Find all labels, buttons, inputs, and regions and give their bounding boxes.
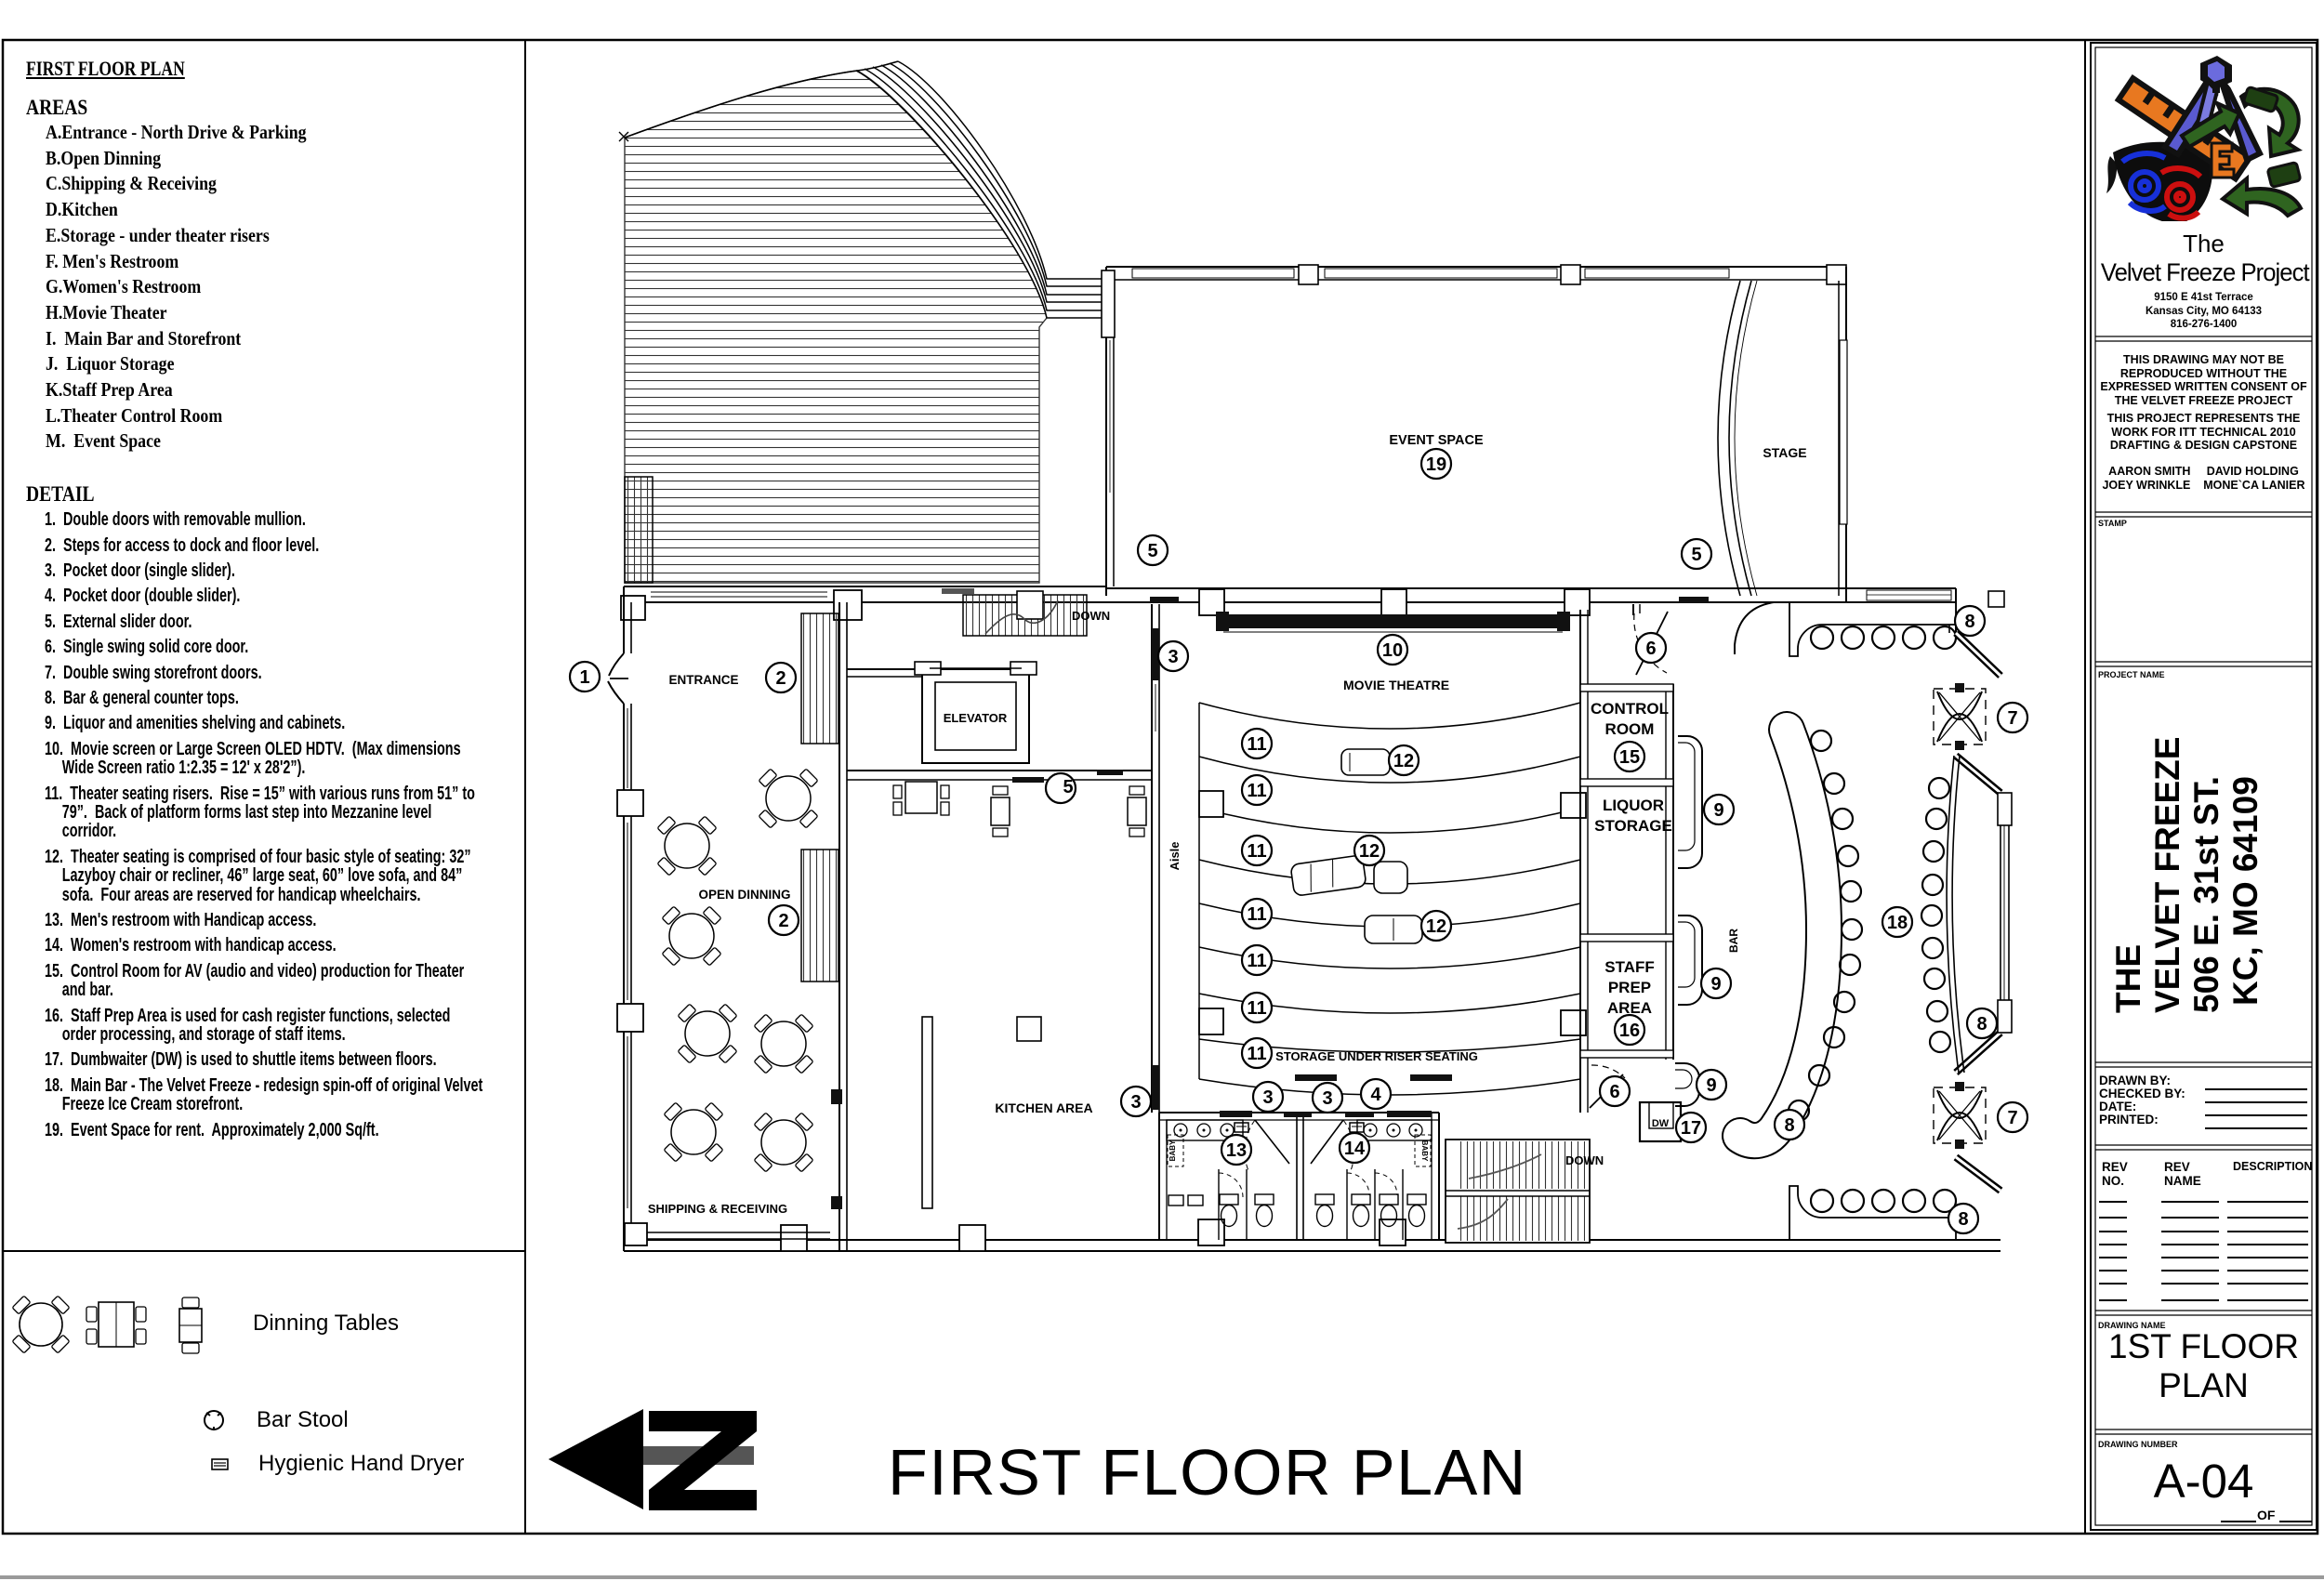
svg-text:THE: THE (2109, 944, 2147, 1013)
svg-text:8: 8 (1976, 1014, 1987, 1034)
svg-text:DW: DW (1652, 1118, 1670, 1129)
svg-text:STAFF: STAFF (1604, 958, 1655, 976)
svg-text:PREP: PREP (1608, 979, 1651, 996)
svg-text:3: 3 (1168, 647, 1178, 667)
svg-text:EVENT SPACE: EVENT SPACE (1389, 433, 1484, 448)
svg-text:11: 11 (1247, 734, 1266, 755)
svg-text:8: 8 (1784, 1115, 1794, 1136)
svg-text:STORAGE: STORAGE (1594, 817, 1672, 835)
svg-text:9: 9 (1710, 974, 1721, 995)
svg-text:5: 5 (1063, 777, 1073, 797)
svg-text:11: 11 (1247, 781, 1266, 801)
svg-text:Aisle: Aisle (1168, 841, 1182, 870)
svg-text:3: 3 (1262, 1087, 1273, 1108)
svg-text:KITCHEN AREA: KITCHEN AREA (995, 1100, 1092, 1115)
svg-text:ROOM: ROOM (1605, 720, 1655, 738)
svg-text:ELEVATOR: ELEVATOR (944, 711, 1008, 725)
svg-text:9: 9 (1713, 800, 1723, 821)
svg-text:11: 11 (1247, 1044, 1266, 1064)
svg-text:11: 11 (1247, 951, 1266, 971)
svg-text:4: 4 (1370, 1085, 1381, 1105)
svg-text:11: 11 (1247, 841, 1266, 862)
svg-text:BABY: BABY (1169, 1140, 1177, 1161)
svg-text:VELVET FREEZE: VELVET FREEZE (2148, 737, 2186, 1013)
svg-text:9: 9 (1706, 1075, 1716, 1096)
svg-text:12: 12 (1426, 916, 1446, 937)
svg-text:12: 12 (1393, 751, 1414, 771)
svg-text:11: 11 (1247, 998, 1266, 1019)
svg-text:DOWN: DOWN (1072, 609, 1110, 623)
svg-text:STORAGE UNDER RISER SEATING: STORAGE UNDER RISER SEATING (1275, 1049, 1478, 1063)
svg-text:3: 3 (1322, 1088, 1332, 1109)
svg-text:MOVIE THEATRE: MOVIE THEATRE (1343, 678, 1449, 692)
svg-text:3: 3 (1130, 1092, 1141, 1113)
svg-text:11: 11 (1247, 904, 1266, 925)
svg-text:5: 5 (1147, 541, 1157, 561)
svg-text:CONTROL: CONTROL (1591, 700, 1669, 718)
svg-text:506 E. 31st ST.: 506 E. 31st ST. (2187, 776, 2225, 1013)
svg-text:6: 6 (1645, 639, 1656, 659)
svg-text:12: 12 (1359, 841, 1380, 862)
svg-text:LIQUOR: LIQUOR (1603, 797, 1664, 814)
svg-text:KC, MO 64109: KC, MO 64109 (2226, 776, 2265, 1006)
svg-text:OPEN DINNING: OPEN DINNING (698, 888, 790, 902)
svg-text:13: 13 (1226, 1140, 1247, 1161)
svg-text:BABY: BABY (1420, 1140, 1429, 1162)
svg-text:10: 10 (1382, 640, 1403, 661)
svg-text:6: 6 (1609, 1082, 1619, 1102)
svg-text:7: 7 (2007, 708, 2017, 729)
svg-text:5: 5 (1691, 545, 1701, 565)
svg-text:1: 1 (579, 667, 589, 688)
svg-text:17: 17 (1681, 1118, 1701, 1139)
svg-text:16: 16 (1619, 1021, 1640, 1041)
svg-text:DOWN: DOWN (1565, 1153, 1604, 1167)
svg-text:7: 7 (2007, 1108, 2017, 1128)
svg-text:19: 19 (1426, 455, 1446, 475)
svg-text:BAR: BAR (1727, 929, 1740, 953)
svg-text:STAGE: STAGE (1763, 445, 1806, 460)
svg-text:2: 2 (778, 911, 788, 931)
svg-text:8: 8 (1964, 612, 1974, 632)
svg-text:8: 8 (1958, 1209, 1968, 1230)
svg-text:18: 18 (1887, 913, 1908, 933)
svg-text:SHIPPING & RECEIVING: SHIPPING & RECEIVING (648, 1202, 787, 1216)
svg-text:14: 14 (1344, 1139, 1366, 1159)
svg-text:ENTRANCE: ENTRANCE (668, 673, 738, 687)
svg-text:2: 2 (775, 668, 786, 689)
svg-text:15: 15 (1619, 747, 1640, 768)
